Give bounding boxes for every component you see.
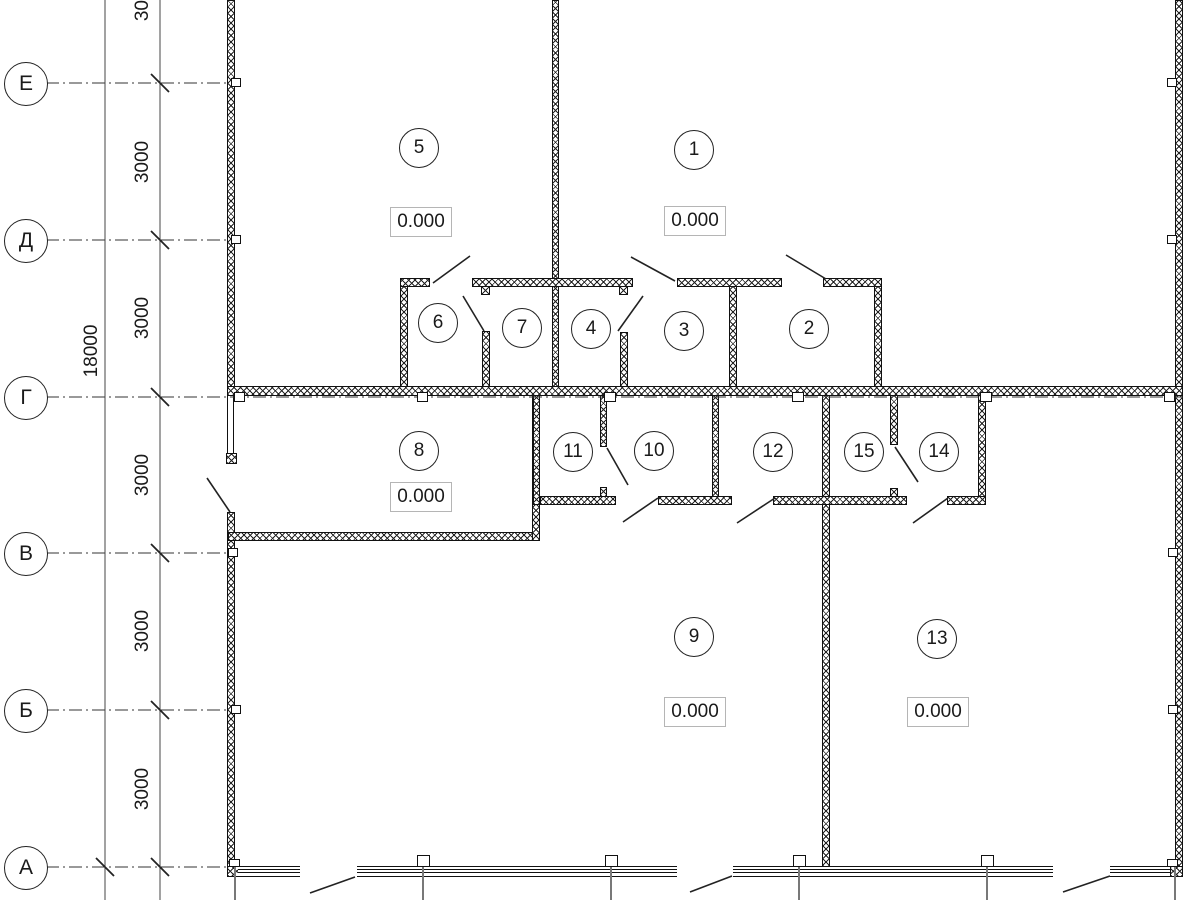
column-marker [980, 392, 992, 402]
partition-bottom-row-d [947, 496, 986, 505]
room-bubble-14: 14 [919, 432, 959, 472]
elevation-mark-room9: 0.000 [664, 697, 726, 727]
column-marker [231, 705, 241, 714]
interior-wall-center-vertical [552, 0, 559, 396]
column-marker [231, 235, 241, 244]
room-bubble-6: 6 [418, 303, 458, 343]
column-marker [604, 392, 616, 402]
axis-label: Д [19, 229, 33, 253]
exterior-wall-left-upper [227, 0, 235, 397]
column-marker [417, 855, 430, 867]
room-bubble-3: 3 [664, 311, 704, 351]
window-band-2 [357, 866, 677, 877]
room-bubble-9: 9 [674, 617, 714, 657]
elevation-value: 0.000 [671, 210, 719, 232]
axis-label: В [19, 542, 33, 566]
column-marker [417, 392, 428, 402]
partition-6-7-lower [482, 331, 490, 387]
window-band-3 [733, 866, 1053, 877]
axis-grid-lines [46, 83, 1183, 867]
column-marker [1167, 859, 1178, 867]
window-band-1 [238, 866, 300, 877]
elevation-mark-room5: 0.000 [390, 207, 452, 237]
elevation-value: 0.000 [914, 701, 962, 723]
partition-15-14-upper [890, 395, 898, 445]
partition-room14-right [978, 395, 986, 505]
column-marker [793, 855, 806, 867]
axis-bubble-g: Г [4, 376, 48, 420]
axis-bubble-d: Д [4, 219, 48, 263]
room-number: 2 [804, 318, 815, 340]
room-bubble-10: 10 [634, 431, 674, 471]
column-marker [229, 859, 240, 867]
exterior-wall-bottom-corner-right [1170, 866, 1183, 877]
room-number: 13 [926, 628, 947, 650]
dimension-label-overall: 18000 [81, 291, 103, 411]
column-marker [605, 855, 618, 867]
elevation-value: 0.000 [397, 211, 445, 233]
room-bubble-8: 8 [399, 431, 439, 471]
room-bubble-13: 13 [917, 619, 957, 659]
axis-bubble-a: А [4, 846, 48, 890]
dimension-label-cropped: 3000 [133, 0, 153, 50]
dimension-label: 3000 [133, 112, 153, 212]
elevation-mark-room13: 0.000 [907, 697, 969, 727]
partition-stub-4-3 [619, 286, 628, 295]
room-number: 14 [928, 441, 949, 463]
dimension-label: 3000 [133, 739, 153, 839]
axis-label: Г [20, 386, 31, 410]
room-number: 9 [689, 626, 700, 648]
wall-pier-left [226, 453, 237, 464]
partition-top-row-b [472, 278, 633, 287]
partition-3-2 [729, 286, 737, 387]
column-marker [231, 78, 241, 87]
guide-line [422, 867, 424, 900]
room-bubble-12: 12 [753, 432, 793, 472]
column-marker [228, 548, 238, 557]
partition-10-12 [712, 395, 719, 505]
room-number: 10 [643, 440, 664, 462]
dimension-label: 3000 [133, 581, 153, 681]
room-number: 3 [679, 320, 690, 342]
window-band-4 [1110, 866, 1170, 877]
room-bubble-15: 15 [844, 432, 884, 472]
column-marker [1164, 392, 1175, 402]
dimension-label: 3000 [133, 425, 153, 525]
room-number: 8 [414, 440, 425, 462]
room-number: 6 [433, 312, 444, 334]
room-bubble-5: 5 [399, 128, 439, 168]
dimension-label: 3000 [133, 268, 153, 368]
room-bubble-11: 11 [553, 432, 593, 472]
room-bubble-2: 2 [789, 309, 829, 349]
room-number: 1 [689, 139, 700, 161]
partition-stub-6-7 [481, 286, 490, 295]
axis-label: А [19, 856, 33, 880]
main-wall-axis-g [227, 386, 1183, 396]
window-strip-left-wall [227, 396, 234, 454]
column-marker [1167, 78, 1177, 87]
column-marker [234, 392, 245, 402]
wall-room8-bottom [228, 532, 540, 541]
guide-line [234, 867, 236, 900]
elevation-value: 0.000 [671, 701, 719, 723]
room-number: 4 [586, 318, 597, 340]
partition-bottom-row-c [773, 496, 907, 505]
column-marker [981, 855, 994, 867]
room-number: 12 [762, 441, 783, 463]
partition-bottom-row-a [540, 496, 616, 505]
room-number: 15 [853, 441, 874, 463]
elevation-mark-room1: 0.000 [664, 206, 726, 236]
partition-room2-right [874, 286, 882, 387]
elevation-mark-room8: 0.000 [390, 482, 452, 512]
elevation-value: 0.000 [397, 486, 445, 508]
exterior-wall-right [1175, 0, 1183, 877]
room-bubble-7: 7 [502, 308, 542, 348]
room-bubble-1: 1 [674, 130, 714, 170]
room-number: 5 [414, 137, 425, 159]
partition-room6-left [400, 286, 408, 387]
room-number: 11 [563, 441, 583, 463]
guide-line [986, 867, 988, 900]
partition-4-3-lower [620, 332, 628, 387]
guide-line [1174, 867, 1176, 900]
exterior-wall-left-lower [227, 512, 235, 877]
partition-bottom-row-b [658, 496, 732, 505]
axis-bubble-v: В [4, 532, 48, 576]
guide-line [798, 867, 800, 900]
axis-label: Е [19, 72, 33, 96]
partition-11-10-upper [600, 395, 607, 447]
column-marker [1167, 235, 1177, 244]
column-marker [1168, 705, 1178, 714]
guide-line [610, 867, 612, 900]
wall-9-13-divider [822, 395, 830, 867]
axis-bubble-e: Е [4, 62, 48, 106]
door-swing-lines [207, 255, 1110, 893]
axis-bubble-b: Б [4, 689, 48, 733]
partition-room11-left [533, 395, 540, 505]
drawing-lines-overlay [0, 0, 1200, 900]
room-number: 7 [517, 317, 528, 339]
axis-label: Б [19, 699, 33, 723]
column-marker [792, 392, 804, 402]
room-bubble-4: 4 [571, 309, 611, 349]
floor-plan-canvas: Е Д Г В Б А 3000 3000 3000 3000 3000 300… [0, 0, 1200, 900]
column-marker [1168, 548, 1178, 557]
